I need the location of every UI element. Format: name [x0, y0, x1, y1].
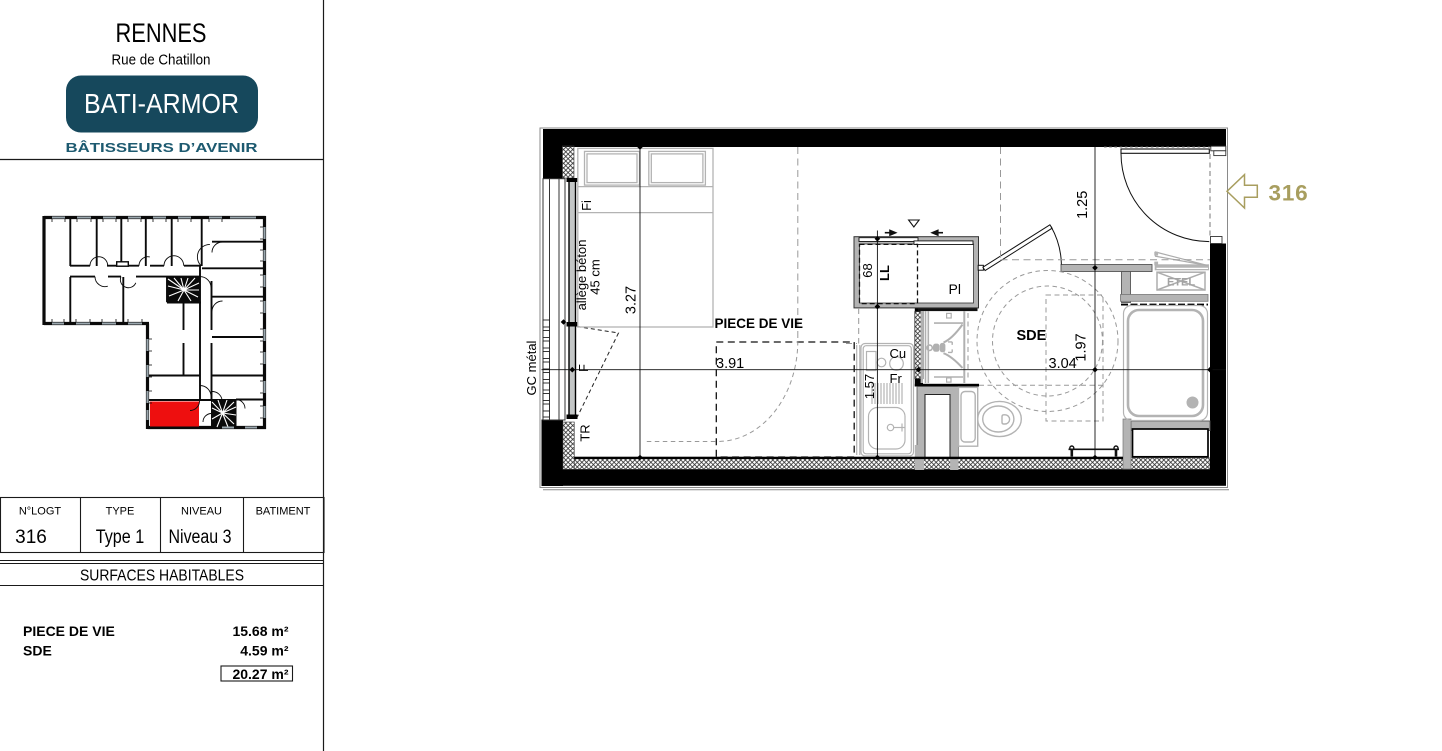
svg-text:Cu: Cu [890, 346, 907, 361]
svg-text:TR: TR [578, 424, 593, 441]
svg-text:BATIMENT: BATIMENT [256, 506, 311, 518]
svg-text:TYPE: TYPE [106, 506, 135, 518]
svg-text:PIECE DE VIE: PIECE DE VIE [23, 623, 115, 639]
svg-text:Niveau 3: Niveau 3 [169, 527, 232, 548]
svg-text:3.91: 3.91 [716, 356, 744, 372]
svg-text:1.97: 1.97 [1074, 333, 1090, 361]
svg-text:316: 316 [1269, 180, 1309, 205]
svg-text:GC métal: GC métal [524, 340, 539, 395]
svg-text:SDE: SDE [1017, 328, 1047, 344]
svg-text:Fi: Fi [579, 200, 594, 211]
svg-text:ETEL: ETEL [1167, 276, 1195, 288]
svg-text:Type 1: Type 1 [96, 527, 145, 548]
svg-text:BÂTISSEURS D’AVENIR: BÂTISSEURS D’AVENIR [66, 140, 259, 155]
svg-text:SDE: SDE [23, 643, 52, 659]
svg-text:SURFACES HABITABLES: SURFACES HABITABLES [80, 568, 244, 585]
svg-text:F: F [576, 364, 591, 372]
svg-text:Rue de Chatillon: Rue de Chatillon [112, 53, 211, 69]
svg-text:RENNES: RENNES [116, 18, 207, 48]
svg-text:N°LOGT: N°LOGT [19, 506, 62, 518]
svg-text:45 cm: 45 cm [588, 259, 603, 294]
svg-text:3.27: 3.27 [624, 286, 640, 314]
svg-text:NIVEAU: NIVEAU [181, 506, 222, 518]
svg-text:Fr: Fr [890, 371, 903, 386]
svg-text:68: 68 [860, 263, 875, 277]
svg-text:Pl: Pl [949, 281, 961, 297]
svg-text:1.57: 1.57 [862, 374, 877, 399]
svg-text:15.68 m²: 15.68 m² [232, 623, 288, 639]
svg-text:1.25: 1.25 [1075, 191, 1091, 219]
svg-text:316: 316 [15, 527, 47, 548]
svg-text:LL: LL [877, 265, 892, 281]
svg-text:4.59 m²: 4.59 m² [240, 643, 289, 659]
svg-text:BATI-ARMOR: BATI-ARMOR [84, 88, 239, 119]
svg-text:PIECE DE VIE: PIECE DE VIE [715, 316, 804, 331]
svg-text:3.04: 3.04 [1049, 356, 1077, 372]
svg-text:20.27 m²: 20.27 m² [232, 666, 288, 682]
